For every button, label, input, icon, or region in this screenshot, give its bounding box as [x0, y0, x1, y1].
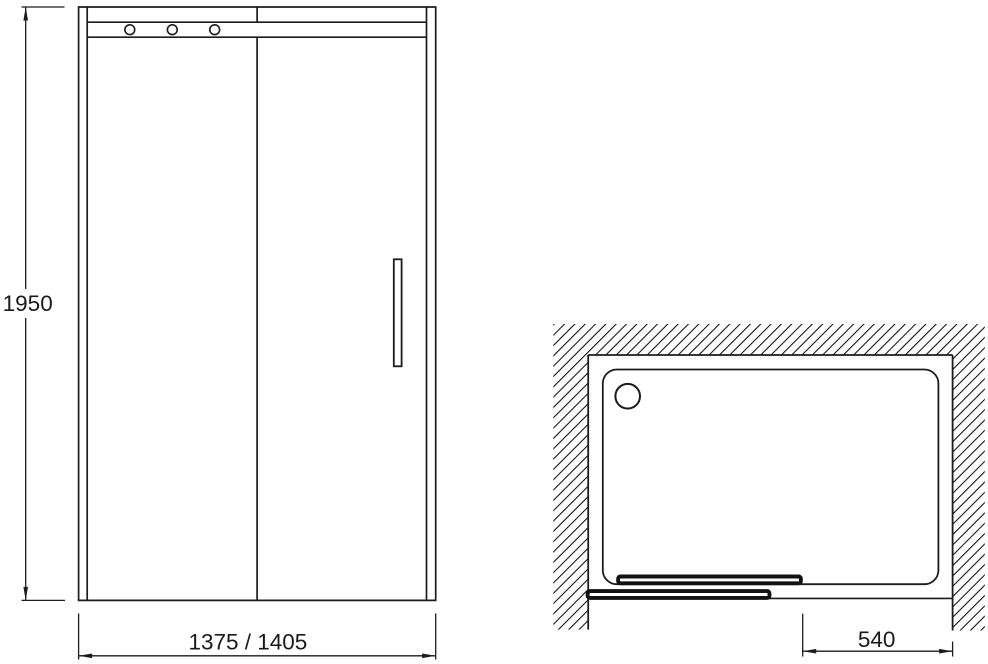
svg-text:540: 540 [858, 627, 896, 652]
svg-text:1950: 1950 [3, 291, 53, 316]
svg-text:1375 / 1405: 1375 / 1405 [188, 630, 307, 655]
